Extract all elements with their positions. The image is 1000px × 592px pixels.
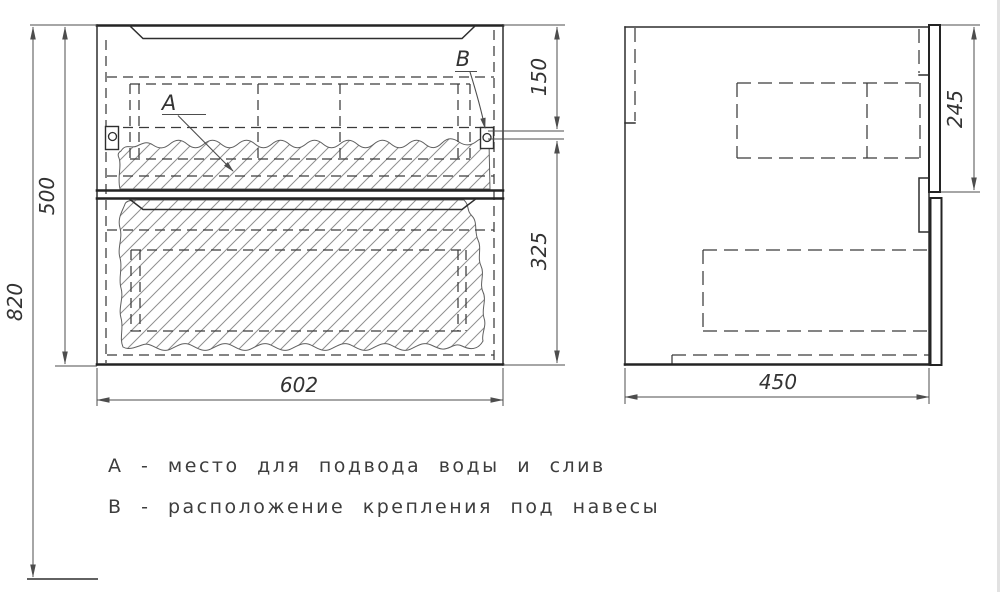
front-view: А В xyxy=(97,25,503,365)
left-hanger-hole xyxy=(109,133,117,141)
right-hanger-hole xyxy=(483,134,491,142)
dim-carcass-height: 500 xyxy=(30,25,97,366)
upper-drawer-front-side xyxy=(929,25,940,192)
side-view-hidden-lines xyxy=(635,28,929,364)
lower-drawer-hatch xyxy=(119,200,485,350)
dim-depth: 450 xyxy=(625,368,929,404)
dim-hanger-to-bottom: 325 xyxy=(527,141,557,363)
label-a: А xyxy=(160,91,176,115)
dim-overall-height-value: 820 xyxy=(3,283,27,321)
side-view xyxy=(625,25,942,365)
dim-carcass-height-value: 500 xyxy=(35,177,59,215)
dim-width-value: 602 xyxy=(280,373,318,397)
dim-drawer-front-height-value: 245 xyxy=(943,90,967,128)
dim-hanger-from-top-value: 150 xyxy=(527,58,551,96)
upper-drawer-hatch xyxy=(118,138,490,189)
dim-drawer-front-height: 245 xyxy=(941,25,980,192)
label-b: В xyxy=(456,47,470,71)
legend: А - место для подвода воды и слив В - ра… xyxy=(108,455,660,518)
dim-hanger-to-bottom-value: 325 xyxy=(527,232,551,270)
technical-drawing: А В xyxy=(0,0,1000,592)
legend-line-b: В - расположение крепления под навесы xyxy=(108,496,660,518)
front-view-hatching xyxy=(118,138,490,350)
lower-drawer-front-side xyxy=(931,198,942,365)
dim-width: 602 xyxy=(97,368,503,406)
callout-b-leader xyxy=(470,72,485,128)
dim-overall-height: 820 xyxy=(3,27,98,579)
dim-hanger-from-top: 150 xyxy=(488,25,565,365)
side-view-outline xyxy=(625,25,942,365)
hanger-brackets xyxy=(106,127,494,150)
legend-line-a: А - место для подвода воды и слив xyxy=(108,455,606,477)
dim-depth-value: 450 xyxy=(759,370,797,394)
drawing-canvas: А В xyxy=(0,0,1000,592)
